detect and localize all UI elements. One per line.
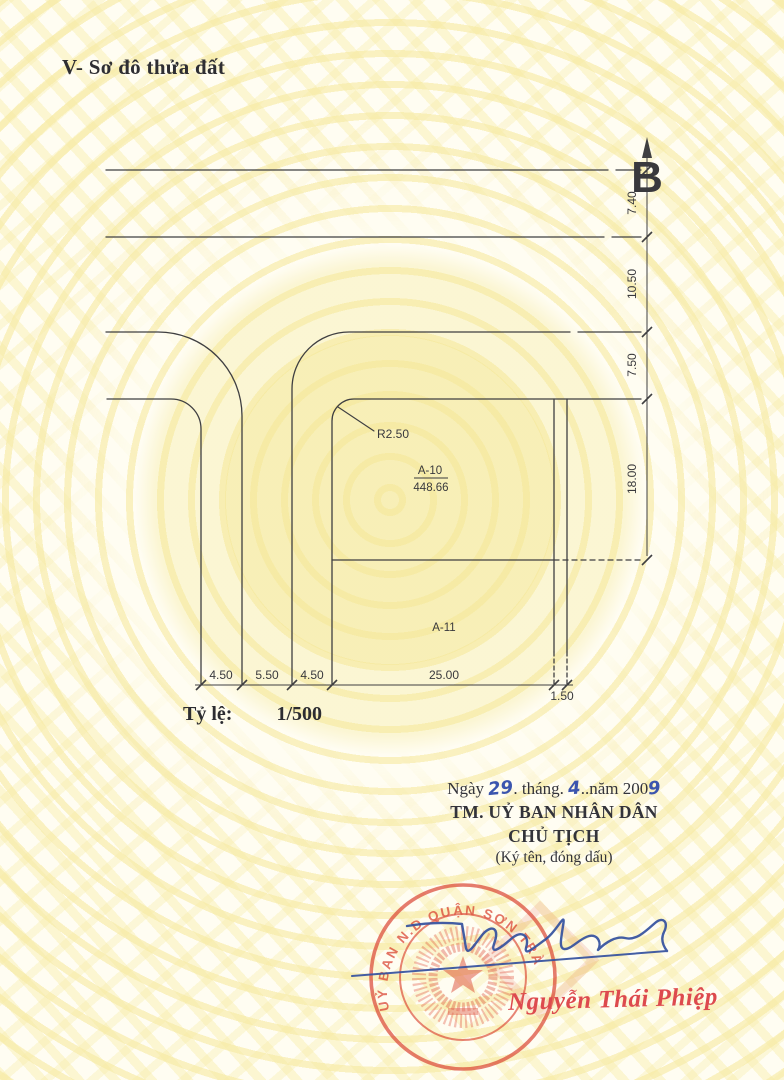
dim-bottom-5-50: 5.50 (255, 668, 279, 682)
dim-bottom-4-50-a: 4.50 (209, 668, 233, 682)
date-year-digit-handwritten: 9 (647, 777, 661, 799)
date-sep2: ..năm 200 (581, 779, 649, 798)
dim-bottom-1-50: 1.50 (550, 689, 574, 703)
road-corner-outer (107, 399, 201, 685)
dim-right-7-50: 7.50 (625, 353, 639, 377)
committee-line: TM. UỶ BAN NHÂN DÂN (404, 802, 704, 823)
signature-underline (352, 951, 667, 976)
parcel-east-lines (554, 399, 567, 652)
dim-right-10-50: 10.50 (625, 269, 639, 299)
dim-bottom-4-50-b: 4.50 (300, 668, 324, 682)
dim-right-7-40: 7.40 (625, 191, 639, 215)
road-corner-east (292, 332, 641, 685)
dim-right-18-00: 18.00 (625, 464, 639, 494)
scale-row: Tỷ lệ:1/500 (183, 703, 322, 726)
sign-note: (Ký tên, đóng dấu) (404, 849, 704, 867)
stamp-gear-base (448, 1008, 478, 1015)
parcel-east-extension (554, 652, 567, 685)
signature-stroke (407, 920, 667, 952)
parcel-a10-area: 448.66 (413, 482, 448, 494)
date-line: Ngày 29. tháng. 4..năm 2009 (404, 778, 704, 799)
signer-name: Nguyễn Thái Phiệp (508, 983, 729, 1017)
date-day-handwritten: 29 (487, 777, 514, 800)
radius-label: R2.50 (377, 427, 409, 441)
date-month-handwritten: 4 (567, 777, 581, 799)
date-sep1: . tháng. (513, 779, 564, 798)
scale-label: Tỷ lệ: (183, 703, 232, 725)
date-prefix: Ngày (447, 779, 484, 798)
signing-block: Ngày 29. tháng. 4..năm 2009 TM. UỶ BAN N… (404, 778, 704, 867)
dim-ticks (196, 165, 652, 690)
scale-value: 1/500 (276, 703, 322, 725)
parcel-a11-id: A-11 (432, 622, 455, 634)
chairman-title: CHỦ TỊCH (404, 826, 704, 847)
road-corner-west (106, 332, 242, 685)
parcel-outline (332, 399, 641, 685)
section-title: V- Sơ đô thửa đất (62, 55, 225, 80)
parcel-a10-id: A-10 (418, 465, 442, 477)
dim-bottom-25-00: 25.00 (429, 668, 459, 682)
radius-leader-line (338, 407, 374, 431)
